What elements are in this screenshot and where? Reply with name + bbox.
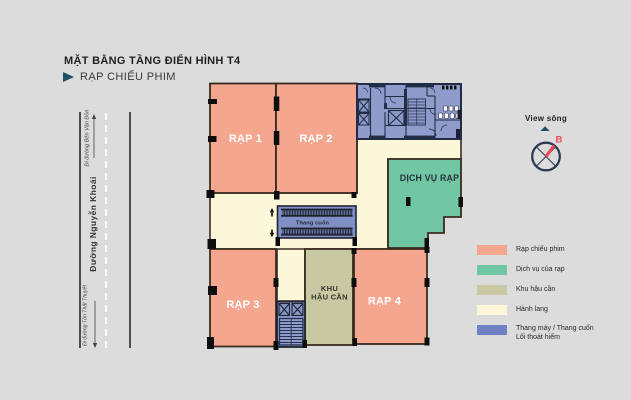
svg-text:View sông: View sông (525, 114, 567, 123)
svg-text:Đường Nguyễn Khoái: Đường Nguyễn Khoái (88, 176, 98, 271)
svg-text:HẬU CẦN: HẬU CẦN (311, 292, 348, 302)
svg-text:Đi đường Tôn Thất Thuyết: Đi đường Tôn Thất Thuyết (82, 284, 89, 345)
svg-text:DỊCH VỤ RẠP: DỊCH VỤ RẠP (400, 173, 459, 183)
svg-text:RẠP 4: RẠP 4 (368, 296, 402, 308)
svg-text:Thang cuốn: Thang cuốn (296, 220, 330, 227)
svg-text:B: B (556, 135, 563, 146)
svg-text:Đi đường Bến Vân Đồn: Đi đường Bến Vân Đồn (84, 110, 91, 167)
svg-text:RẠP 1: RẠP 1 (229, 133, 262, 145)
svg-text:RẠP 2: RẠP 2 (299, 133, 332, 145)
svg-text:RẠP 3: RẠP 3 (226, 299, 259, 311)
